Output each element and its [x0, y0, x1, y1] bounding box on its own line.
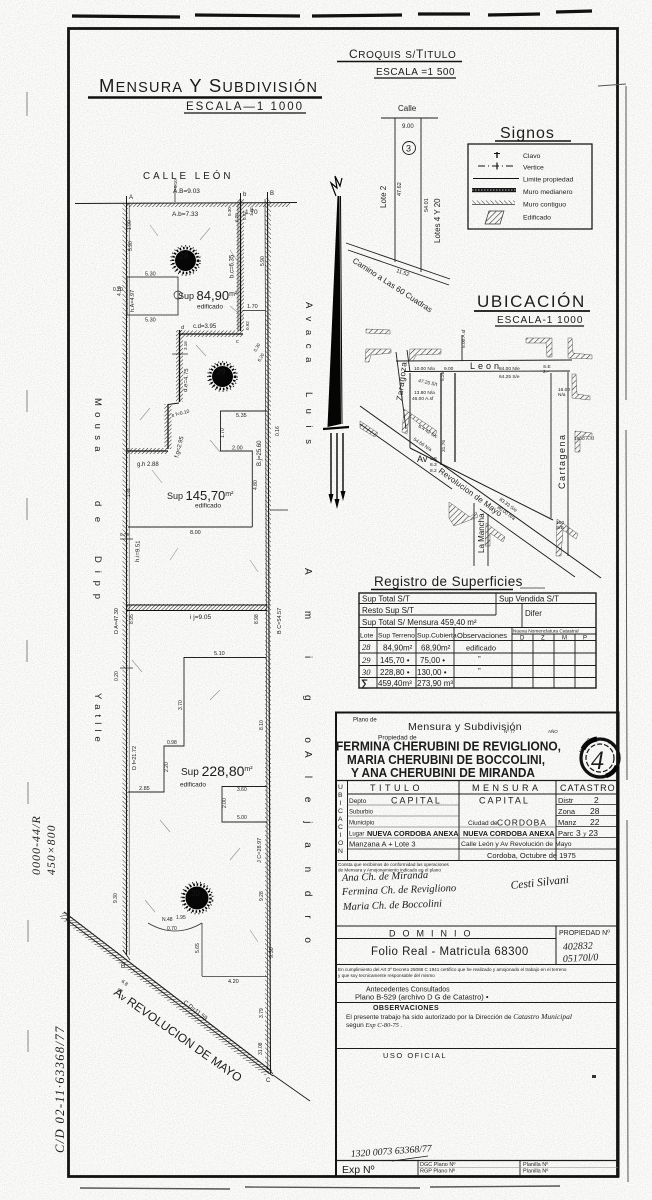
- svg-text:0.30: 0.30: [227, 207, 232, 216]
- svg-text:M o u s a: M o u s a: [92, 398, 103, 453]
- svg-text:22: 22: [590, 817, 600, 827]
- svg-text:Signos: Signos: [500, 125, 555, 142]
- svg-text:B: B: [270, 191, 274, 197]
- svg-text:28: 28: [362, 642, 371, 652]
- svg-text:M: M: [562, 636, 567, 642]
- svg-text:edificado: edificado: [466, 644, 496, 653]
- svg-text:ESCALA-1 1000: ESCALA-1 1000: [497, 315, 583, 326]
- svg-text:2.00: 2.00: [222, 798, 228, 808]
- svg-text:Muro contiguo: Muro contiguo: [523, 202, 566, 209]
- svg-text:DOMINIO: DOMINIO: [389, 929, 478, 939]
- svg-text:A.B=9.03: A.B=9.03: [173, 188, 200, 195]
- svg-text:0.98: 0.98: [167, 740, 177, 746]
- svg-text:RGP Plano Nº: RGP Plano Nº: [420, 1168, 455, 1175]
- svg-text:0.92: 0.92: [242, 211, 247, 220]
- svg-text:0.10: 0.10: [173, 179, 178, 188]
- svg-text:En cumplimiento del Art 3º Dec: En cumplimiento del Art 3º Decreto 25088…: [338, 967, 567, 972]
- svg-text:Difer: Difer: [525, 609, 542, 618]
- svg-text:273,90 m³: 273,90 m³: [417, 679, 453, 688]
- svg-text:Y a t l l e: Y a t l l e: [92, 693, 103, 743]
- svg-text:8.98: 8.98: [254, 614, 260, 624]
- svg-text:Cordoba, Octubre de 1975: Cordoba, Octubre de 1975: [487, 851, 576, 860]
- svg-text:64.25 S/e: 64.25 S/e: [499, 374, 520, 380]
- svg-text:8.2: 8.2: [430, 468, 437, 474]
- svg-text:29: 29: [217, 368, 226, 377]
- svg-text:I: I: [340, 800, 342, 807]
- svg-text:i j=9.05: i j=9.05: [190, 614, 212, 621]
- svg-text:8.00: 8.00: [190, 530, 201, 536]
- svg-text:Municipio: Municipio: [349, 821, 375, 827]
- svg-text:b.c=6.35: b.c=6.35: [230, 254, 236, 278]
- svg-text:Manz: Manz: [558, 818, 577, 827]
- svg-text:A l e j a n d r o: A l e j a n d r o: [302, 751, 313, 951]
- svg-text:3.79: 3.79: [259, 1008, 265, 1018]
- svg-text:13.80 N/a: 13.80 N/a: [414, 390, 435, 396]
- svg-text:CROQUIS S/TITULO: CROQUIS S/TITULO: [349, 47, 456, 61]
- svg-text:0.70: 0.70: [120, 532, 129, 537]
- svg-text:edificado: edificado: [197, 304, 223, 311]
- svg-text:31.08: 31.08: [258, 1042, 264, 1055]
- svg-text:ESCALA =1 500: ESCALA =1 500: [376, 67, 455, 78]
- svg-text:9.8: 9.8: [430, 456, 437, 462]
- svg-text:Manzana A + Lote 3: Manzana A + Lote 3: [349, 840, 416, 849]
- svg-text:Observaciones: Observaciones: [457, 631, 507, 640]
- svg-text:28: 28: [590, 806, 600, 816]
- svg-text:Nueva Nomenclatura Catastral: Nueva Nomenclatura Catastral: [513, 629, 579, 635]
- svg-text:d e: d e: [92, 501, 103, 526]
- svg-text:9.30: 9.30: [269, 947, 275, 958]
- svg-text:Sup Total S/ Mensura 459,40: Sup Total S/ Mensura 459,40 m²: [362, 618, 477, 627]
- svg-text:La Mancha: La Mancha: [477, 513, 486, 553]
- svg-text:1.95: 1.95: [176, 915, 186, 921]
- svg-text:CATASTRO: CATASTRO: [560, 783, 616, 793]
- svg-text:UBICACIÓN: UBICACIÓN: [477, 292, 586, 311]
- svg-text:C/D 02-11·63368/77: C/D 02-11·63368/77: [53, 1025, 67, 1153]
- svg-text:C: C: [338, 808, 343, 815]
- svg-text:c.d=3.95: c.d=3.95: [193, 324, 217, 330]
- svg-text:h.i=9.51: h.i=9.51: [135, 540, 142, 562]
- svg-text:edificado: edificado: [195, 503, 221, 510]
- svg-text:B.j=25.60: B.j=25.60: [257, 440, 263, 466]
- svg-text:∑: ∑: [361, 679, 368, 690]
- svg-text:I: I: [340, 832, 342, 839]
- svg-text:8.3: 8.3: [430, 462, 437, 468]
- svg-text:68,90m²: 68,90m²: [421, 644, 451, 653]
- svg-text:0000-44/R: 0000-44/R: [29, 815, 43, 875]
- svg-text:0.16: 0.16: [275, 426, 281, 436]
- svg-text:3: 3: [406, 144, 411, 154]
- svg-text:84.00 N/e: 84.00 N/e: [499, 366, 520, 372]
- svg-text:B C=54.57: B C=54.57: [277, 608, 283, 634]
- svg-text:450×800: 450×800: [46, 824, 58, 875]
- svg-text:”: ”: [478, 655, 481, 664]
- svg-text:Folio Real - Matricula 68: Folio Real - Matricula 68300: [371, 946, 529, 958]
- svg-text:ESCALA—1 1000: ESCALA—1 1000: [186, 101, 304, 113]
- svg-text:54.01: 54.01: [424, 198, 430, 212]
- svg-text:Y ANA CHERUBINI DE MIRANDA: Y ANA CHERUBINI DE MIRANDA: [351, 766, 535, 780]
- svg-text:5.10: 5.10: [214, 651, 225, 657]
- svg-text:1.62: 1.62: [249, 207, 254, 216]
- svg-text:Distr: Distr: [558, 796, 574, 805]
- svg-text:CALLE LEÓN: CALLE LEÓN: [143, 171, 233, 182]
- svg-text:USO OFICIAL: USO OFICIAL: [383, 1051, 447, 1060]
- svg-text:05170l/0: 05170l/0: [563, 952, 599, 965]
- svg-text:459,40m³: 459,40m³: [378, 679, 412, 688]
- svg-text:47.62: 47.62: [397, 182, 403, 196]
- svg-text:J C=28.97: J C=28.97: [257, 838, 263, 863]
- svg-text:Sup Total S/T: Sup Total S/T: [362, 595, 410, 604]
- svg-text:5.00: 5.00: [237, 815, 247, 821]
- svg-text:4: 4: [591, 746, 604, 775]
- svg-text:MENSURA: MENSURA: [472, 783, 542, 793]
- svg-text:Sup Terreno: Sup Terreno: [378, 633, 415, 640]
- svg-text:NUEVA CORDOBA ANEXA: NUEVA CORDOBA ANEXA: [367, 829, 459, 838]
- svg-text:5.90: 5.90: [128, 241, 134, 251]
- svg-text:9.00: 9.00: [402, 124, 414, 130]
- svg-text:228,80 •: 228,80 •: [380, 668, 410, 677]
- svg-text:Sup 145,70m²: Sup 145,70m²: [167, 488, 234, 503]
- svg-text:30: 30: [191, 889, 200, 898]
- svg-text:Consta que recibimos de confor: Consta que recibimos de conformidad las …: [338, 862, 450, 867]
- svg-text:Calle León y Av Revolución de: Calle León y Av Revolución de Mayo: [461, 841, 572, 848]
- svg-text:A: A: [129, 195, 133, 201]
- svg-text:Cartagena: Cartagena: [557, 433, 567, 489]
- svg-text:2.-: 2.-: [543, 369, 549, 375]
- svg-text:Resto Sup S/T: Resto Sup S/T: [362, 606, 414, 615]
- svg-text:MARIA CHERUBINI DE BOCCOLINI,: MARIA CHERUBINI DE BOCCOLINI,: [347, 753, 545, 767]
- svg-text:D A=47.30: D A=47.30: [114, 608, 120, 634]
- svg-text:5.90: 5.90: [260, 256, 266, 266]
- svg-text:9.00: 9.00: [444, 366, 454, 372]
- svg-text:145,70 •: 145,70 •: [380, 656, 410, 665]
- svg-text:402832: 402832: [563, 940, 594, 953]
- svg-text:Registro de Superficies: Registro de Superficies: [374, 574, 523, 589]
- svg-text:A v a c a: A v a c a: [303, 302, 314, 365]
- svg-text:0.92: 0.92: [245, 321, 250, 330]
- svg-text:NUEVA CORDOBA ANEXA: NUEVA CORDOBA ANEXA: [463, 829, 555, 838]
- svg-text:d.e=4.75: d.e=4.75: [183, 368, 190, 392]
- svg-text:C: C: [266, 1078, 271, 1084]
- svg-text:8.10: 8.10: [259, 720, 265, 730]
- svg-text:Zona: Zona: [558, 807, 576, 816]
- svg-text:g.h 2.88: g.h 2.88: [137, 462, 159, 468]
- svg-text:Vertice: Vertice: [523, 165, 544, 172]
- svg-text:Muro medianero: Muro medianero: [523, 189, 573, 196]
- svg-text:C: C: [338, 824, 343, 831]
- svg-text:Leon: Leon: [470, 361, 502, 371]
- svg-text:y que soy tecnicamente respon: y que soy tecnicamente responsable del m…: [338, 973, 435, 978]
- svg-text:A m i g o: A m i g o: [302, 568, 313, 760]
- svg-text:B: B: [338, 792, 343, 799]
- svg-text:N: N: [338, 848, 343, 855]
- svg-text:2: 2: [594, 795, 599, 805]
- svg-text:5.35: 5.35: [236, 413, 247, 419]
- svg-text:3.70: 3.70: [178, 700, 184, 710]
- svg-text:5.26: 5.26: [440, 371, 446, 381]
- svg-text:PROPIEDAD Nº: PROPIEDAD Nº: [559, 930, 610, 937]
- svg-text:S/B: S/B: [556, 525, 564, 531]
- svg-text:P: P: [583, 636, 587, 642]
- svg-text:0.70: 0.70: [167, 926, 177, 932]
- svg-text:Lotes 4 Y 20: Lotes 4 Y 20: [433, 198, 442, 243]
- svg-text:3 y 23: 3 y 23: [576, 828, 598, 838]
- svg-text:Sup 84,90m²: Sup 84,90m²: [178, 288, 238, 303]
- svg-text:4.20: 4.20: [228, 979, 239, 985]
- svg-text:10.00 N/a: 10.00 N/a: [414, 366, 435, 372]
- svg-text:0.20: 0.20: [114, 671, 120, 681]
- svg-text:c: c: [236, 339, 239, 345]
- svg-text:2.85: 2.85: [139, 786, 150, 792]
- svg-text:130,00 •: 130,00 •: [417, 668, 447, 677]
- svg-text:Planilla Nº: Planilla Nº: [523, 1168, 548, 1175]
- svg-text:AÑO: AÑO: [548, 728, 558, 734]
- svg-text:Ciudad de: Ciudad de: [468, 820, 498, 827]
- svg-text:5.30: 5.30: [145, 318, 156, 324]
- svg-text:CAPITAL: CAPITAL: [479, 796, 530, 806]
- svg-text:D: D: [520, 636, 525, 642]
- svg-text:U: U: [338, 784, 343, 791]
- svg-text:D i p p: D i p p: [92, 556, 103, 602]
- svg-text:Parc: Parc: [558, 829, 574, 838]
- svg-text:CAPITAL: CAPITAL: [391, 796, 442, 806]
- svg-text:Sup.Cubierta: Sup.Cubierta: [417, 633, 457, 640]
- svg-text:5.00 A sf: 5.00 A sf: [461, 329, 467, 348]
- svg-text:DGC Plano Nº: DGC Plano Nº: [420, 1161, 455, 1168]
- svg-text:29: 29: [362, 655, 371, 665]
- svg-text:1.70: 1.70: [220, 428, 226, 438]
- svg-text:1.70: 1.70: [247, 304, 258, 310]
- svg-text:Exp Nº: Exp Nº: [342, 1164, 375, 1176]
- svg-text:edificado: edificado: [180, 782, 206, 789]
- svg-text:Suburbio: Suburbio: [349, 810, 374, 816]
- svg-text:Lugar: Lugar: [349, 832, 364, 838]
- svg-text:3.60: 3.60: [237, 787, 247, 793]
- svg-text:3.16: 3.16: [183, 341, 188, 350]
- svg-text:1.90: 1.90: [127, 220, 133, 230]
- svg-text:A.b=7.33: A.b=7.33: [172, 211, 199, 218]
- svg-text:46.00 A.sf: 46.00 A.sf: [412, 396, 434, 402]
- svg-text:D: D: [121, 964, 126, 970]
- svg-text:4.10: 4.10: [117, 286, 123, 296]
- svg-text:N.48: N.48: [162, 917, 173, 923]
- svg-text:A: A: [338, 816, 343, 823]
- svg-text:Calle: Calle: [398, 104, 417, 113]
- svg-text:9.30: 9.30: [113, 893, 119, 903]
- svg-text:5.65: 5.65: [195, 943, 201, 953]
- svg-text:Depto: Depto: [349, 798, 367, 805]
- svg-text:Clavo: Clavo: [523, 153, 541, 160]
- svg-text:Plano B-529 (archivo D G de C: Plano B-529 (archivo D G de Catastro) •: [355, 993, 489, 1002]
- svg-text:L u i s: L u i s: [303, 392, 314, 449]
- svg-text:El presente trabajo ha sido au: El presente trabajo ha sido autorizado p…: [346, 1012, 572, 1021]
- svg-text:Lote: Lote: [360, 633, 373, 640]
- svg-text:4.80: 4.80: [253, 480, 259, 490]
- svg-text:segun Exp C-80-75 .: segun Exp C-80-75 .: [346, 1022, 403, 1029]
- svg-text:Plano de: Plano de: [353, 718, 377, 724]
- svg-text:Z: Z: [541, 636, 545, 642]
- svg-text:d: d: [181, 325, 184, 331]
- svg-text:2.00: 2.00: [232, 446, 243, 452]
- svg-text:31.76: 31.76: [441, 440, 447, 452]
- svg-text:N/a: N/a: [558, 392, 566, 398]
- svg-text:9.28: 9.28: [259, 891, 265, 901]
- svg-text:6.20: 6.20: [234, 213, 239, 222]
- svg-text:28: 28: [180, 252, 189, 261]
- svg-text:5.30: 5.30: [145, 272, 156, 278]
- svg-text:FERMINA CHERUBINI DE REVIGLION: FERMINA CHERUBINI DE REVIGLIONO,: [336, 740, 561, 754]
- svg-text:75,00 •: 75,00 •: [420, 656, 445, 665]
- svg-text:Planilla Nº: Planilla Nº: [523, 1161, 548, 1168]
- svg-text:84,90m²: 84,90m²: [383, 644, 413, 653]
- svg-text:1600 A.sf: 1600 A.sf: [574, 436, 595, 442]
- svg-text:Sup Vendida S/T: Sup Vendida S/T: [499, 595, 559, 604]
- svg-text:2.20: 2.20: [164, 762, 170, 772]
- svg-text:OBSERVACIONES: OBSERVACIONES: [373, 1005, 439, 1012]
- svg-text:1.45: 1.45: [126, 488, 131, 497]
- svg-text:Lote 2: Lote 2: [379, 185, 388, 208]
- svg-text:TITULO: TITULO: [370, 783, 423, 793]
- svg-text:CORDOBA: CORDOBA: [497, 818, 547, 828]
- svg-text:D f=21.72: D f=21.72: [132, 746, 138, 770]
- svg-text:Av: Av: [417, 454, 428, 464]
- svg-text:30: 30: [361, 667, 371, 677]
- svg-text:8.95: 8.95: [129, 614, 135, 624]
- svg-text:h.A=4.97: h.A=4.97: [130, 290, 136, 312]
- svg-text:O: O: [338, 840, 343, 847]
- svg-text:”: ”: [478, 667, 481, 676]
- svg-text:Nº 77: Nº 77: [504, 729, 516, 734]
- svg-text:Limite propiedad: Limite propiedad: [523, 177, 573, 184]
- svg-text:Edificado: Edificado: [523, 215, 551, 222]
